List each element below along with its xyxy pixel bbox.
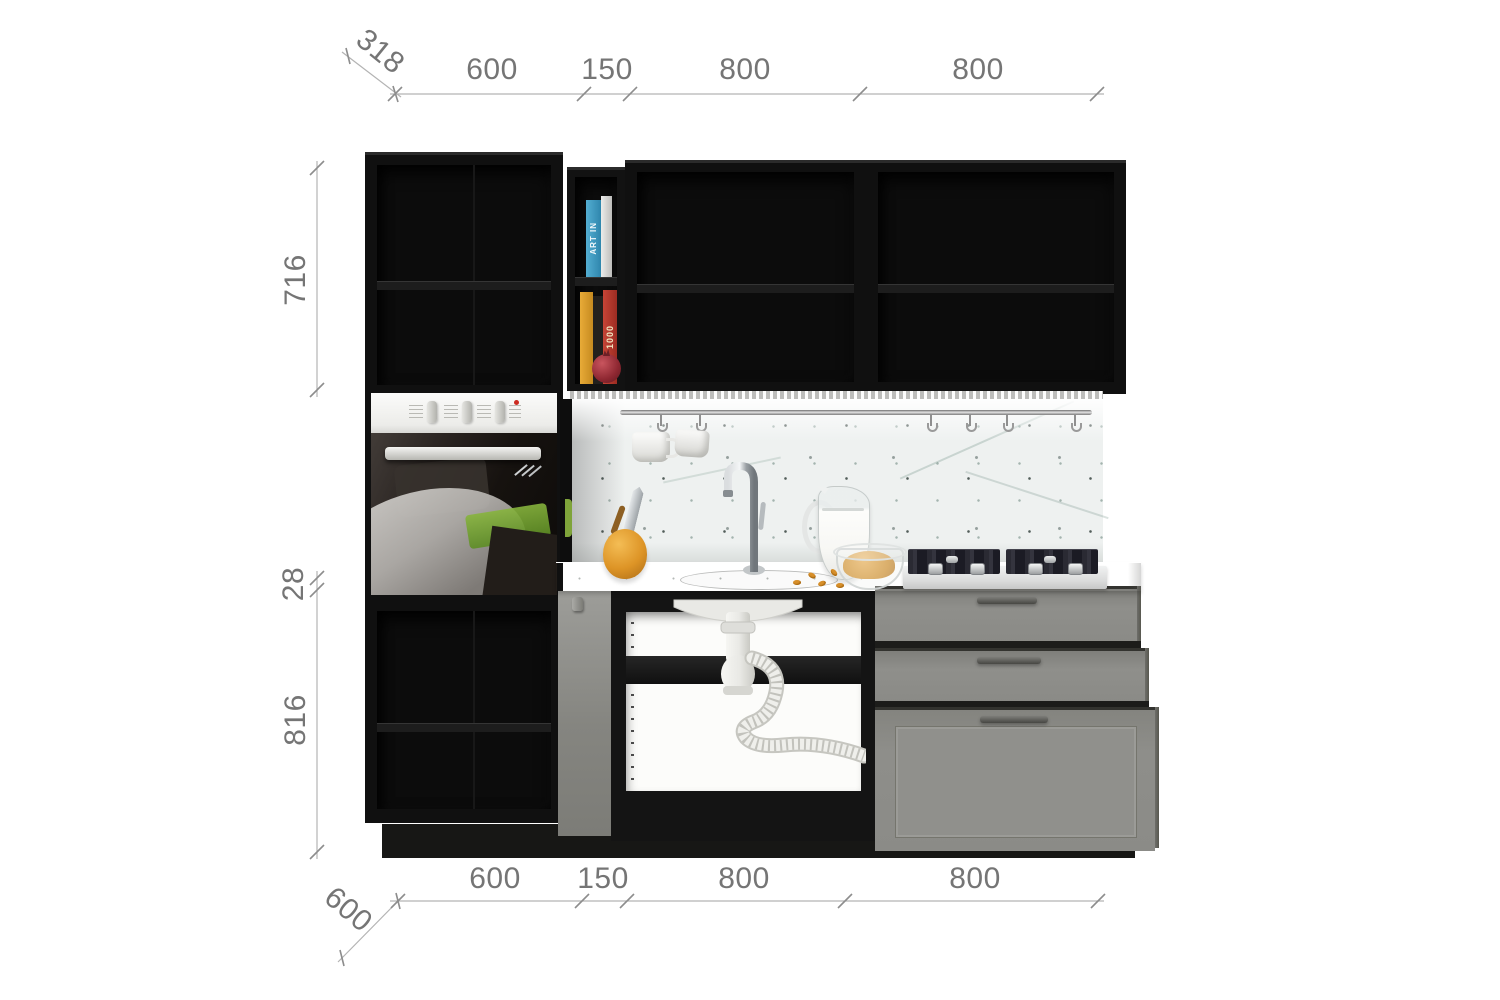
dim-bottom-600-label: 600 <box>469 862 521 896</box>
dimension-lines <box>0 0 1500 1000</box>
dim-bottom-150-label: 150 <box>577 862 629 896</box>
dim-left-28-label: 28 <box>277 567 311 601</box>
dim-left-716-label: 716 <box>279 254 313 306</box>
dim-top-800b-label: 800 <box>952 53 1004 87</box>
dim-bottom-800b-label: 800 <box>949 862 1001 896</box>
dim-top-600-label: 600 <box>466 53 518 87</box>
kitchen-elevation-scene: ART IN 1000 <box>0 0 1500 1000</box>
dim-top-800a-label: 800 <box>719 53 771 87</box>
dim-top-150-label: 150 <box>581 53 633 87</box>
dim-left-816-label: 816 <box>279 694 313 746</box>
dim-bottom-800a-label: 800 <box>718 862 770 896</box>
